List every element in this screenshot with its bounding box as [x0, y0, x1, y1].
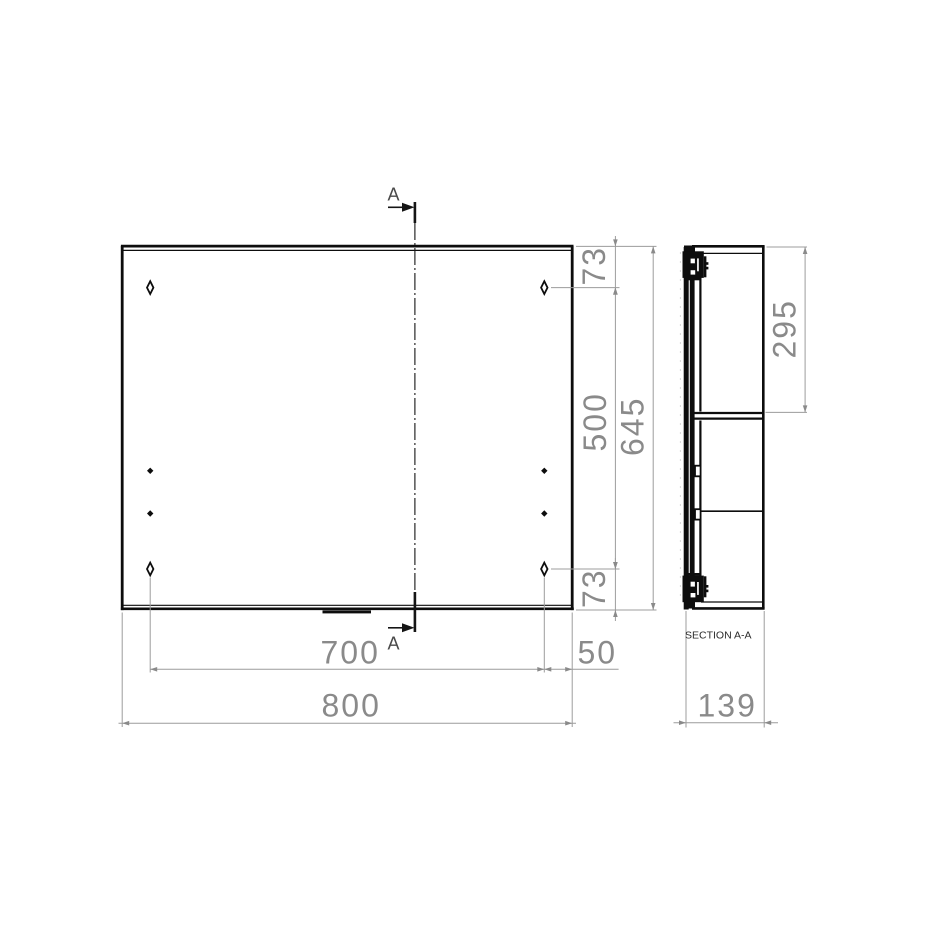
svg-text:500: 500: [577, 392, 613, 451]
svg-text:SECTION A-A: SECTION A-A: [685, 630, 752, 642]
svg-text:295: 295: [767, 299, 803, 358]
svg-text:139: 139: [698, 688, 757, 724]
svg-text:A: A: [388, 634, 400, 654]
svg-text:645: 645: [615, 397, 651, 456]
svg-text:73: 73: [576, 246, 612, 286]
svg-text:50: 50: [578, 635, 618, 671]
svg-text:73: 73: [576, 568, 612, 608]
svg-text:700: 700: [321, 635, 380, 671]
svg-text:800: 800: [322, 688, 381, 724]
svg-text:A: A: [388, 185, 400, 205]
